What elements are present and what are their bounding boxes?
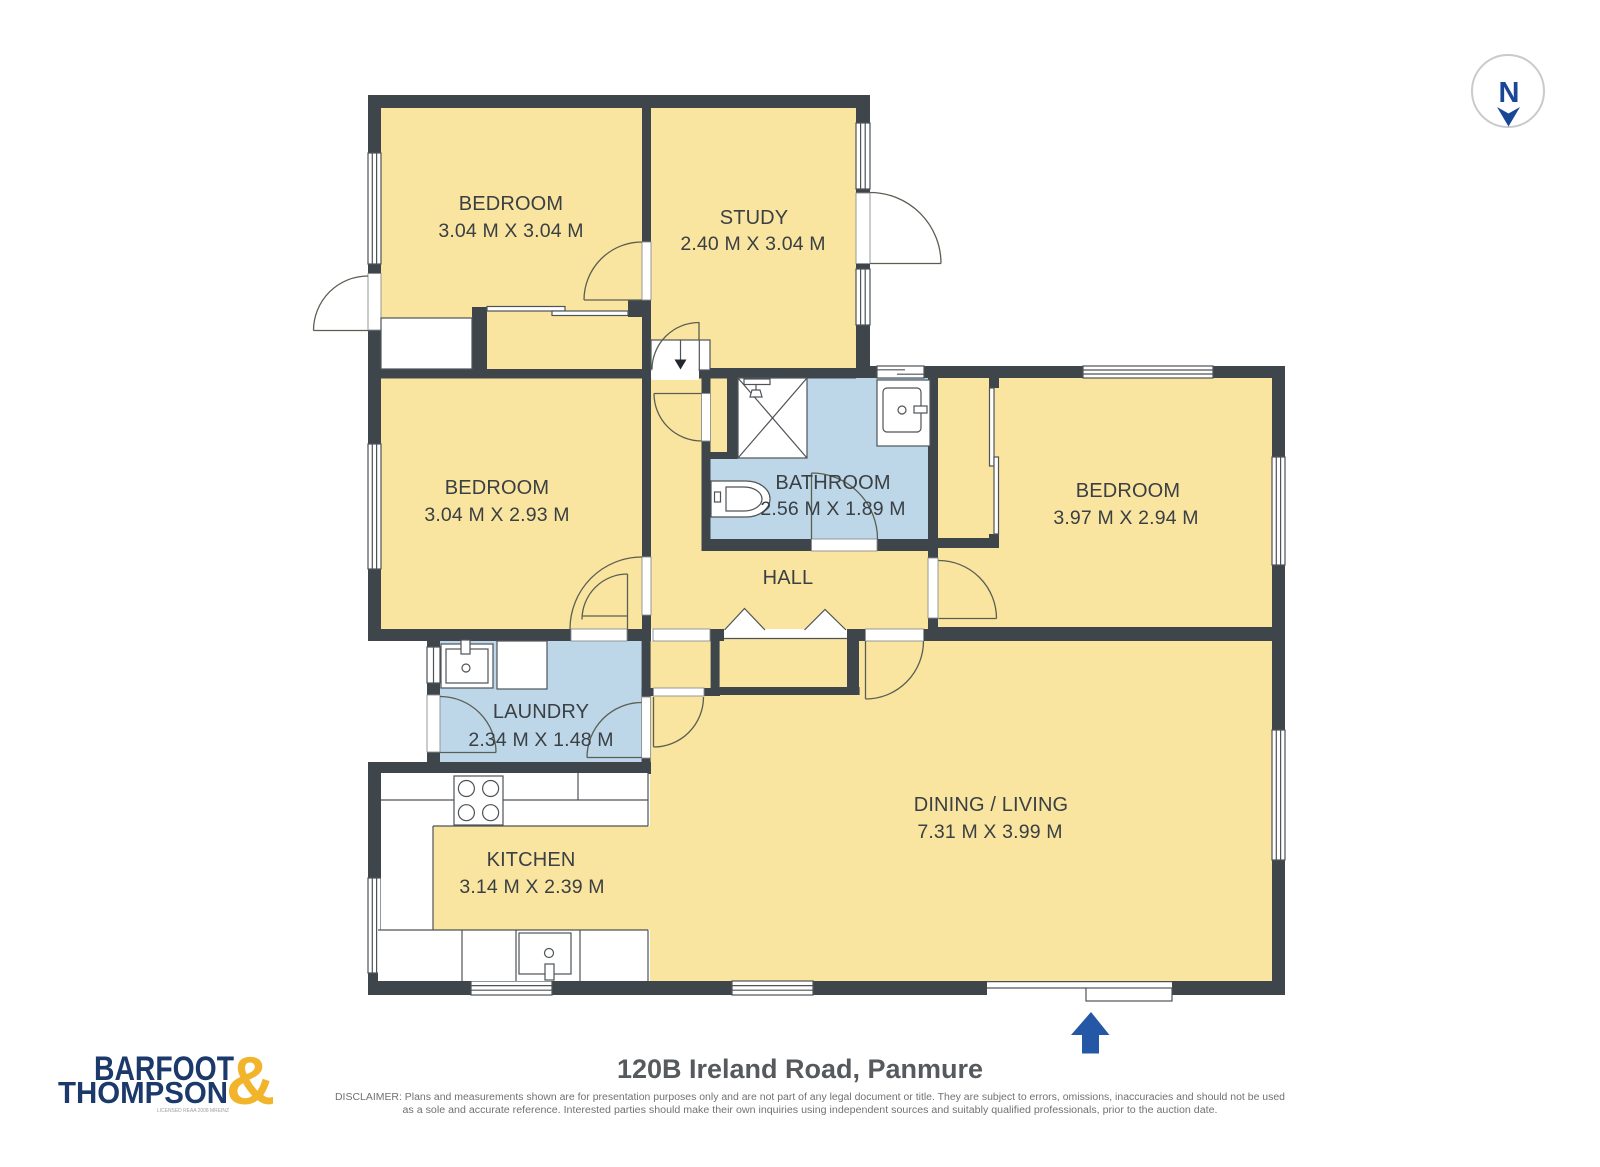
svg-text:BATHROOM: BATHROOM [775,472,890,494]
svg-text:KITCHEN: KITCHEN [487,849,576,871]
svg-text:7.31 M X 3.99 M: 7.31 M X 3.99 M [917,821,1062,843]
svg-text:THOMPSON: THOMPSON [58,1075,228,1110]
svg-text:2.40 M X 3.04 M: 2.40 M X 3.04 M [680,233,825,255]
svg-text:LAUNDRY: LAUNDRY [493,701,589,723]
svg-text:N: N [1499,77,1520,109]
svg-text:BEDROOM: BEDROOM [445,477,549,499]
svg-text:DINING / LIVING: DINING / LIVING [914,794,1069,816]
svg-text:3.04 M X 3.04 M: 3.04 M X 3.04 M [438,220,583,242]
svg-text:2.34 M X 1.48 M: 2.34 M X 1.48 M [468,729,613,751]
svg-text:HALL: HALL [763,567,814,589]
svg-text:BEDROOM: BEDROOM [1076,480,1180,502]
svg-text:2.56 M X 1.89 M: 2.56 M X 1.89 M [760,498,905,520]
svg-text:120B Ireland Road, Panmure: 120B Ireland Road, Panmure [617,1054,983,1084]
svg-text:3.04 M X 2.93 M: 3.04 M X 2.93 M [424,504,569,526]
svg-text:BEDROOM: BEDROOM [459,193,563,215]
svg-text:&: & [226,1043,275,1119]
svg-text:STUDY: STUDY [720,207,789,229]
svg-text:3.14 M X 2.39 M: 3.14 M X 2.39 M [459,876,604,898]
svg-text:as a sole and accurate referen: as a sole and accurate reference. Intere… [403,1105,1218,1116]
svg-text:DISCLAIMER: Plans and measurem: DISCLAIMER: Plans and measurements shown… [335,1092,1285,1103]
svg-text:LICENSED REAA 2008 MREINZ: LICENSED REAA 2008 MREINZ [157,1108,230,1114]
svg-text:3.97 M X 2.94 M: 3.97 M X 2.94 M [1053,507,1198,529]
